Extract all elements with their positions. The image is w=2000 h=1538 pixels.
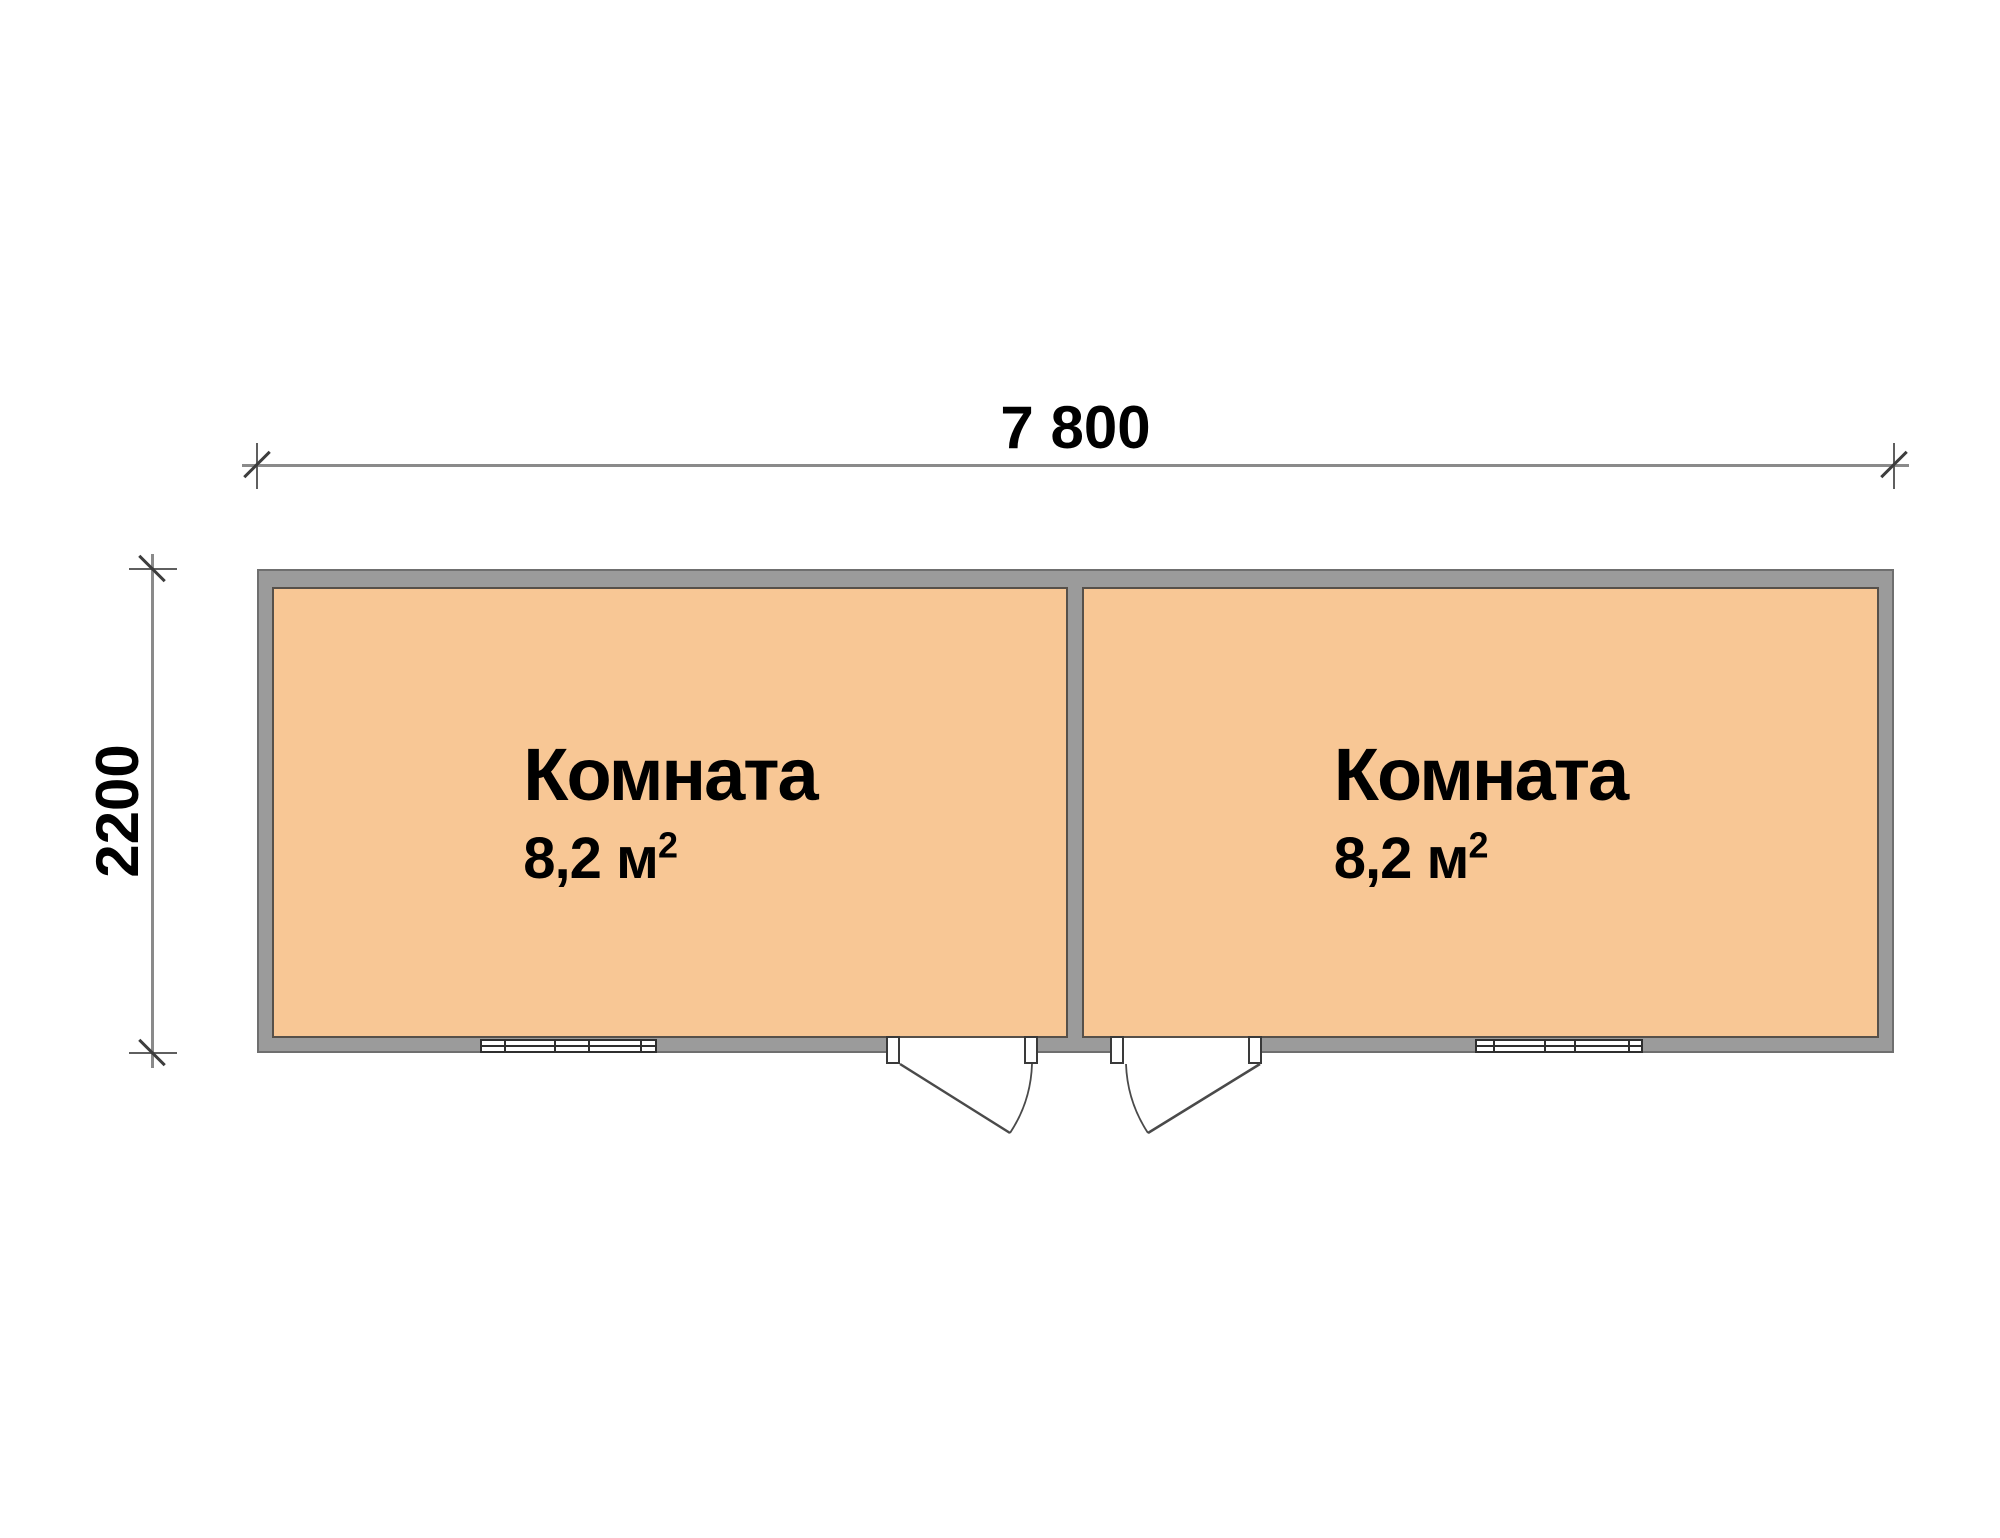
dimension-width-label: 7 800 xyxy=(257,398,1894,458)
window-mullion xyxy=(1544,1041,1546,1051)
floor-plan-canvas: 7 800 2200 Комната 8,2 м2 Комната 8,2 м2 xyxy=(0,0,2000,1538)
window-mullion xyxy=(640,1041,642,1051)
door-jamb xyxy=(1024,1036,1038,1064)
room-area-value: 8,2 м xyxy=(1334,826,1469,891)
window-mullion xyxy=(554,1041,556,1051)
room-right: Комната 8,2 м2 xyxy=(1082,587,1879,1038)
dimension-depth-label: 2200 xyxy=(88,744,148,877)
room-area-exponent: 2 xyxy=(658,824,677,865)
door-jamb xyxy=(1248,1036,1262,1064)
window-mullion xyxy=(1628,1041,1630,1051)
door-arc-right xyxy=(1126,1064,1148,1133)
window-mullion xyxy=(1574,1041,1576,1051)
room-name-label: Комната xyxy=(1334,738,1627,812)
window-glass-line xyxy=(1477,1045,1641,1047)
door-leaf-right xyxy=(1148,1064,1260,1133)
room-area-value: 8,2 м xyxy=(523,826,658,891)
window-mullion xyxy=(588,1041,590,1051)
dimension-depth-line xyxy=(151,554,154,1068)
room-name-label: Комната xyxy=(523,738,816,812)
window-right xyxy=(1475,1039,1643,1053)
room-left: Комната 8,2 м2 xyxy=(272,587,1068,1038)
door-arc-left xyxy=(1010,1064,1032,1133)
window-left xyxy=(480,1039,657,1053)
door-leaf-left xyxy=(900,1064,1010,1133)
door-jamb xyxy=(1110,1036,1124,1064)
room-area-label: 8,2 м2 xyxy=(1334,830,1627,888)
window-mullion xyxy=(504,1041,506,1051)
room-area-exponent: 2 xyxy=(1468,824,1487,865)
door-opening-right xyxy=(1123,1038,1260,1054)
window-glass-line xyxy=(482,1045,655,1047)
door-jamb xyxy=(886,1036,900,1064)
dimension-width-line xyxy=(242,464,1909,467)
room-right-label: Комната 8,2 м2 xyxy=(1334,738,1627,888)
window-mullion xyxy=(1493,1041,1495,1051)
room-area-label: 8,2 м2 xyxy=(523,830,816,888)
door-opening-left xyxy=(890,1038,1037,1054)
room-left-label: Комната 8,2 м2 xyxy=(523,738,816,888)
